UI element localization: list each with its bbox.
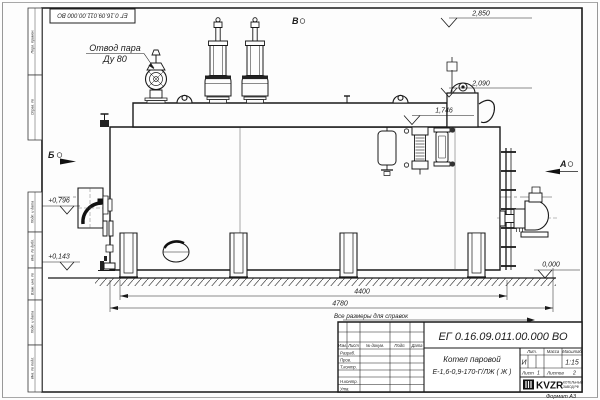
gauge-glass <box>415 135 426 161</box>
view-marker-left: Б <box>48 150 55 160</box>
margin-label: Инв. № подл. <box>31 357 35 379</box>
drain-valve <box>104 256 107 261</box>
tb-col-doc: № докум. <box>366 343 384 348</box>
motor <box>525 201 549 230</box>
elev-0143: +0,143 <box>48 254 70 261</box>
tb-company-2: ЗАВОД РФ <box>563 385 580 389</box>
drawing-sheet: Перв. примен. Справ. № Подп. и дата Инв.… <box>0 0 600 400</box>
tb-logo-text: KVZR <box>536 381 564 392</box>
level-indicator <box>434 128 450 132</box>
ground <box>48 278 556 286</box>
elev-2850: 2,850 <box>471 11 490 18</box>
gauge-glass-top-fitting <box>412 127 428 135</box>
tb-sheets-value: 2 <box>572 371 576 377</box>
tb-hdr-lit: Лит. <box>526 349 537 354</box>
front-top-valve <box>100 120 109 127</box>
dim-supports-span: 4400 <box>354 289 370 296</box>
support-leg <box>119 233 138 277</box>
reference-note-text: Все размеры для справок <box>334 313 409 320</box>
tb-sheet-label: Лист <box>521 371 534 376</box>
drum-vent <box>344 96 350 103</box>
tb-product-name-1: Котел паровой <box>443 355 501 364</box>
margin-label: Подп. и дата <box>31 311 35 334</box>
tb-doc-number: ЕГ 0.16.09.011.00.000 ВО <box>438 331 568 343</box>
steam-outlet-label-2: Ду 80 <box>102 54 126 64</box>
tb-company-1: КОТЕЛЬНЫЙ <box>563 381 584 385</box>
margin-label: Инв. № дубл. <box>31 239 35 261</box>
drawing-canvas: Перв. примен. Справ. № Подп. и дата Инв.… <box>0 0 600 400</box>
tb-row-nkontr: Н.контр. <box>340 379 358 384</box>
tb-sheets-label: Листов <box>546 371 564 376</box>
steam-outlet-annotation: Отвод пара Ду 80 <box>86 43 155 70</box>
elev-0000: 0,000 <box>542 262 560 269</box>
reference-note: Все размеры для справок <box>334 313 535 323</box>
tb-col-data: Дата <box>410 343 423 348</box>
tb-col-podp: Подп. <box>394 343 405 348</box>
tb-col-list: Лист <box>347 343 359 348</box>
tb-hdr-scale: Масштаб <box>562 349 582 354</box>
margin-label: Перв. примен. <box>31 30 35 54</box>
tb-row-razrab: Разраб. <box>340 351 355 356</box>
elev-0796: +0,796 <box>48 198 70 205</box>
gauge-glass-bottom-fitting <box>412 161 428 169</box>
dim-overall-length: 4780 <box>332 301 348 308</box>
margin-label: Взам. инв. № <box>31 273 35 295</box>
view-marker-right: А <box>559 159 567 169</box>
title-block: Изм. Лист № докум. Подп. Дата Разраб. Пр… <box>338 322 584 400</box>
view-arrow-left <box>60 159 76 165</box>
elev-1746: 1,746 <box>435 108 453 115</box>
tb-row-tkontr: Т.контр. <box>340 365 357 370</box>
tb-hdr-mass: Масса <box>547 349 560 354</box>
pump-housing <box>514 209 525 228</box>
elev-2090: 2,090 <box>471 81 490 88</box>
upper-drum <box>133 103 447 127</box>
safety-valve <box>205 18 231 103</box>
steam-outlet-label-1: Отвод пара <box>89 43 140 53</box>
top-stamp-doc-number: ЕГ 0.16.09.011.00.000 ВО <box>57 12 128 18</box>
top-stamp: ЕГ 0.16.09.011.00.000 ВО <box>50 9 135 23</box>
margin-column: Перв. примен. Справ. № Подп. и дата Инв.… <box>28 8 42 392</box>
tb-row-utv: Утв. <box>340 387 350 392</box>
view-arrow-right <box>545 169 560 175</box>
margin-label: Подп. и дата <box>31 201 35 224</box>
tb-col-izm: Изм. <box>338 343 347 348</box>
format-label: Формат А3 <box>546 394 577 400</box>
tb-row-prov: Пров. <box>340 358 351 363</box>
hook-pipe <box>479 100 494 122</box>
tb-product-name-2: Е-1,6-0,9-170-Г/ЛЖ ( Ж ) <box>432 369 511 376</box>
tb-sheet-value: 1 <box>537 371 540 377</box>
tb-scale-value: 1:15 <box>565 360 579 367</box>
view-marker-top: В <box>292 16 299 26</box>
margin-label: Справ. № <box>31 99 35 115</box>
steam-outlet-valve <box>145 50 167 103</box>
level-column-vessel <box>378 131 396 165</box>
